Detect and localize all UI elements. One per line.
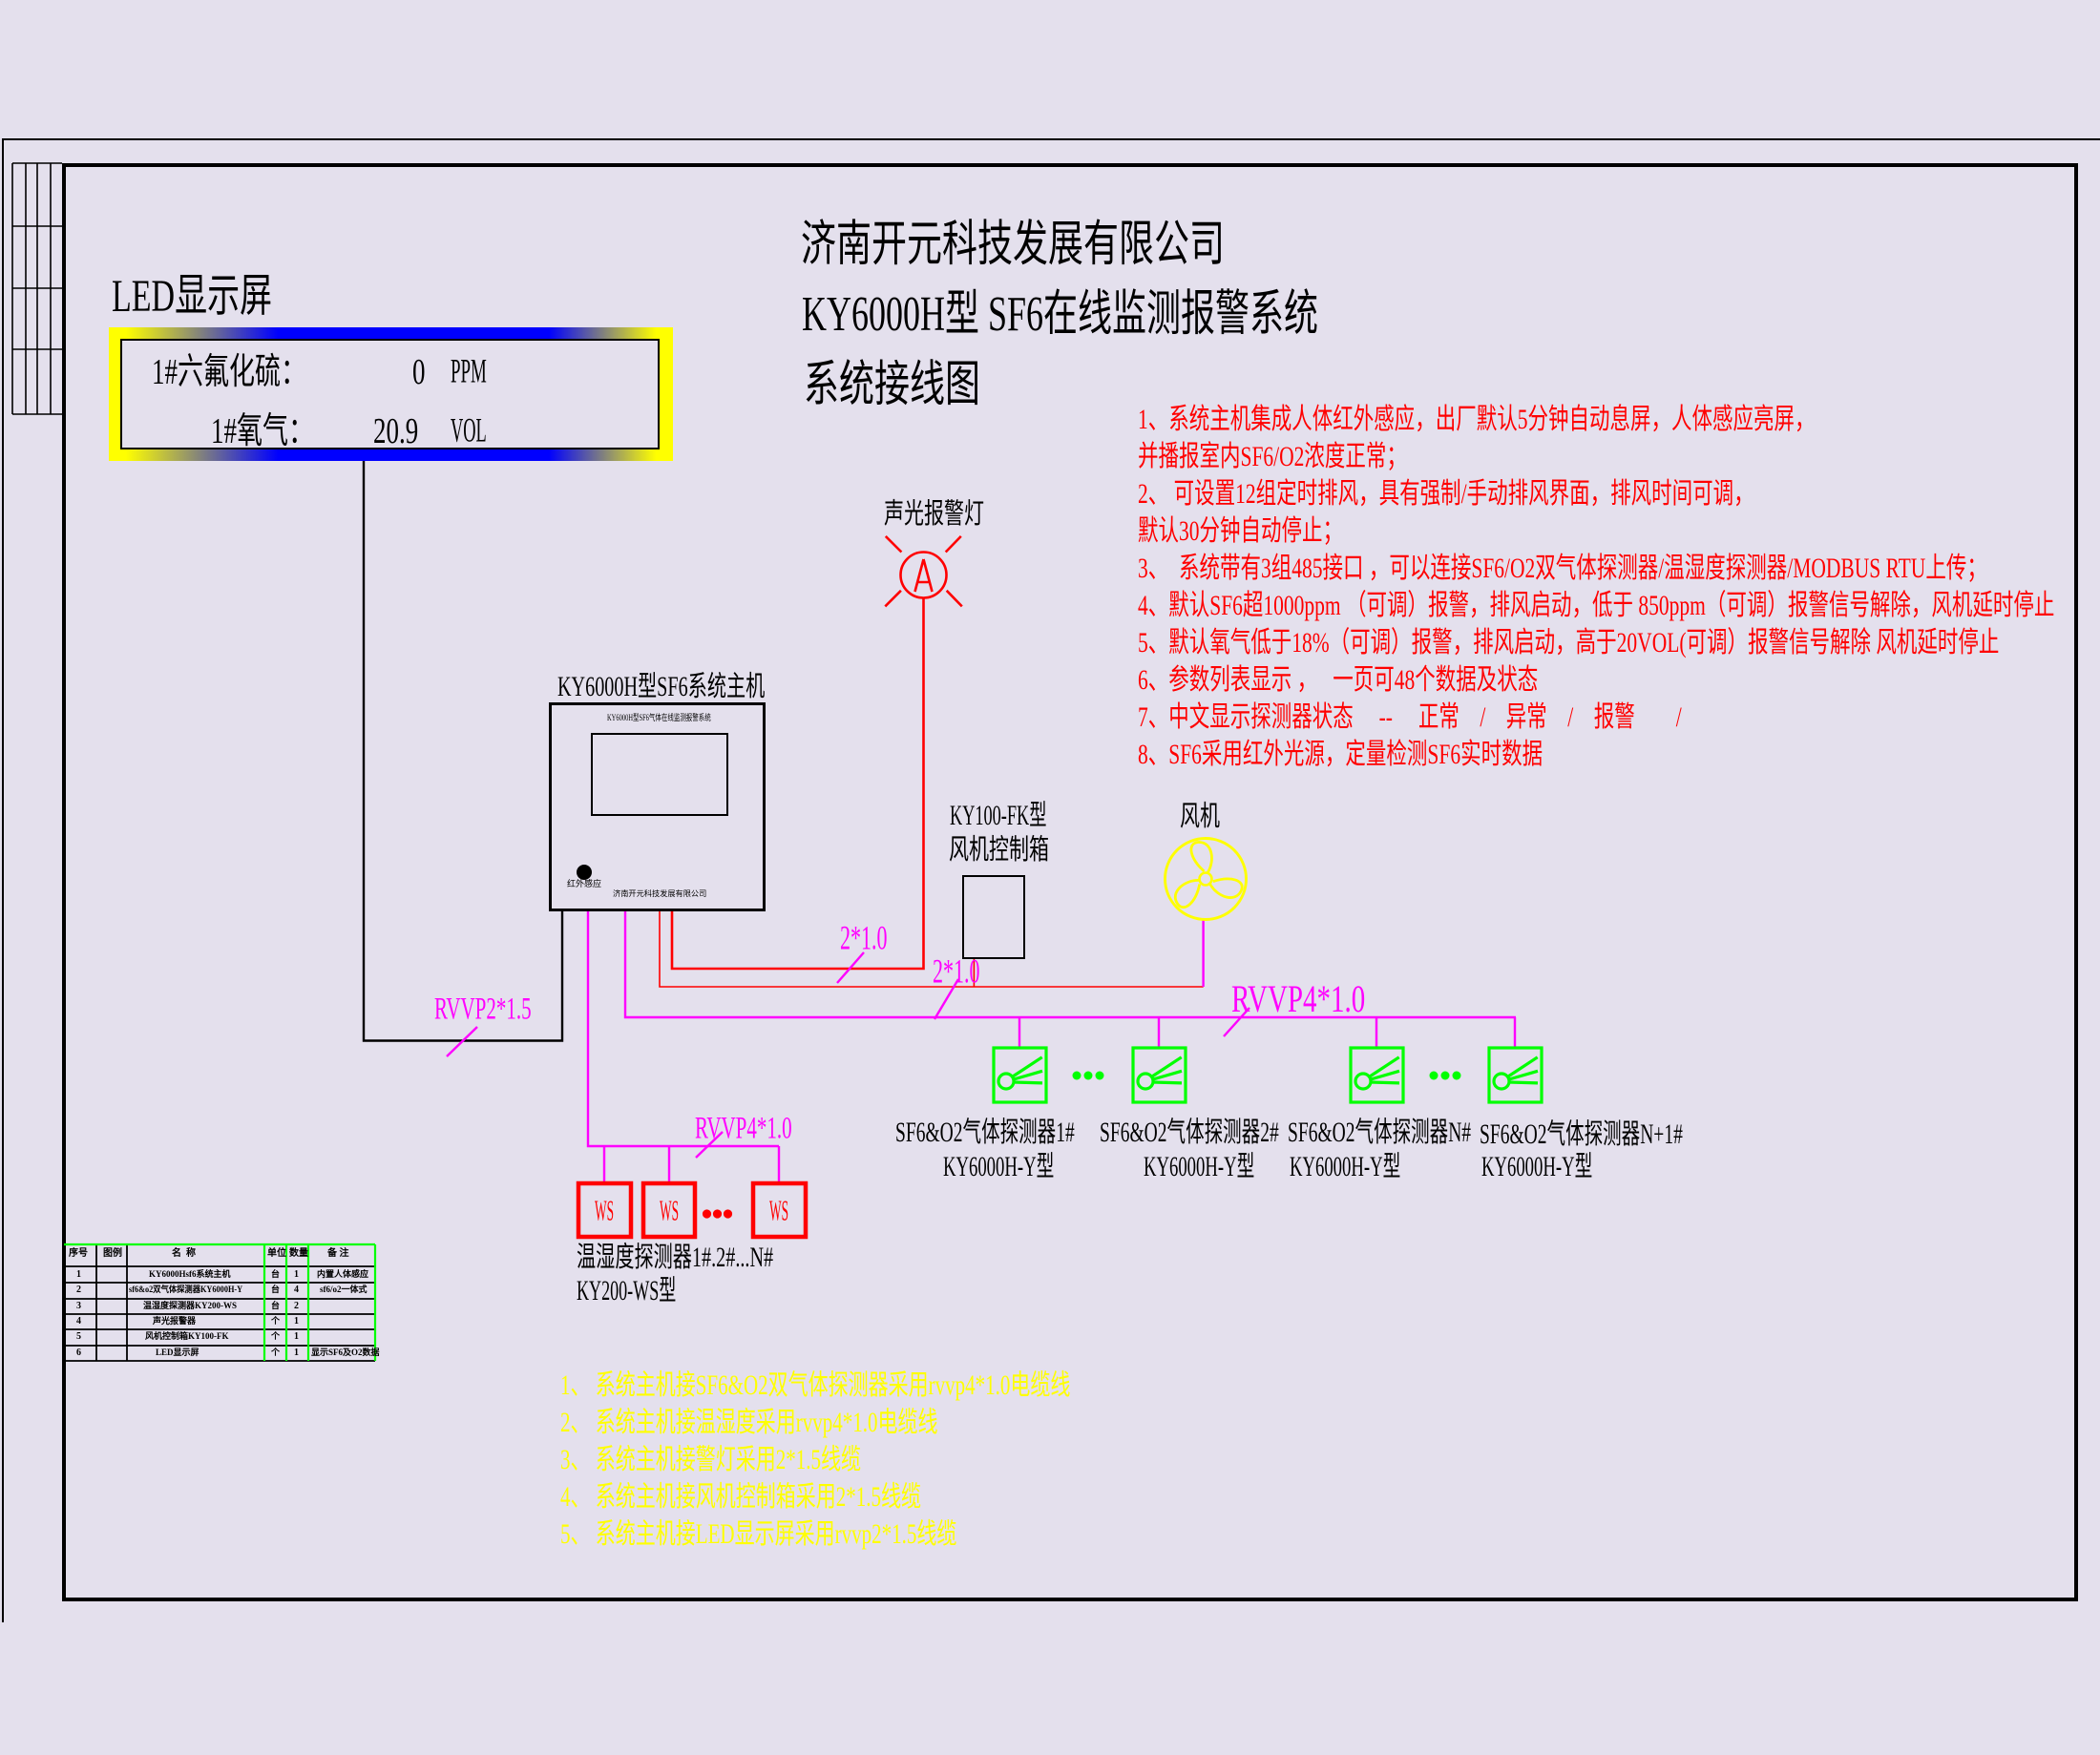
- svg-text:WS: WS: [595, 1194, 614, 1227]
- svg-text:WS: WS: [769, 1194, 788, 1227]
- svg-text:WS: WS: [660, 1194, 679, 1227]
